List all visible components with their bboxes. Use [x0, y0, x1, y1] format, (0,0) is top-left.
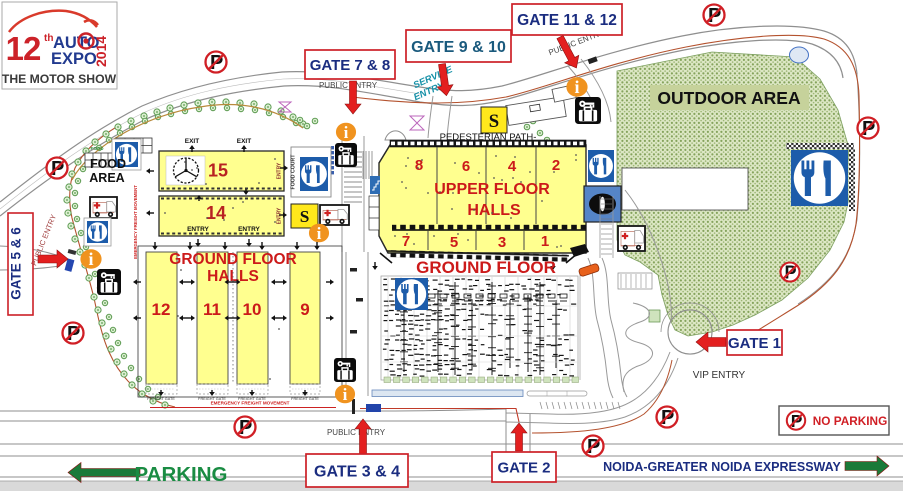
svg-text:GATE 2: GATE 2	[497, 459, 550, 476]
svg-text:12: 12	[152, 300, 171, 319]
svg-text:i: i	[344, 123, 349, 142]
svg-text:PUBLIC ENTRY: PUBLIC ENTRY	[327, 428, 386, 437]
svg-text:GATE 5 & 6: GATE 5 & 6	[9, 227, 24, 300]
svg-text:UPPER FLOOR: UPPER FLOOR	[434, 181, 550, 198]
svg-text:7: 7	[402, 233, 410, 250]
svg-text:EXPO: EXPO	[51, 50, 97, 68]
svg-text:VIP ENTRY: VIP ENTRY	[693, 370, 746, 381]
svg-text:PEDESTERIAN PATH-: PEDESTERIAN PATH-	[440, 132, 537, 143]
svg-text:OUTDOOR AREA: OUTDOOR AREA	[657, 88, 801, 108]
svg-text:AREA: AREA	[89, 171, 124, 185]
svg-text:4: 4	[508, 158, 517, 175]
svg-text:12: 12	[6, 30, 41, 67]
svg-text:GROUND FLOOR: GROUND FLOOR	[416, 258, 556, 277]
svg-text:S: S	[300, 207, 310, 226]
svg-text:2: 2	[552, 157, 560, 174]
svg-text:ENTRY: ENTRY	[277, 207, 283, 224]
svg-text:PARKING: PARKING	[134, 463, 227, 486]
svg-text:ENTRY: ENTRY	[187, 226, 209, 233]
svg-text:i: i	[343, 385, 348, 404]
svg-text:FOOD: FOOD	[91, 146, 105, 151]
svg-text:i: i	[574, 77, 579, 97]
svg-text:FREIGHT GATE: FREIGHT GATE	[147, 397, 175, 401]
svg-text:ENTRY: ENTRY	[277, 162, 283, 179]
svg-text:15: 15	[208, 161, 228, 181]
svg-text:NO PARKING: NO PARKING	[813, 414, 888, 428]
svg-text:GATE 7 & 8: GATE 7 & 8	[310, 57, 391, 74]
svg-text:HALLS: HALLS	[467, 202, 521, 219]
svg-text:THE MOTOR SHOW: THE MOTOR SHOW	[2, 72, 117, 86]
svg-text:9: 9	[300, 300, 309, 319]
svg-text:14: 14	[206, 203, 226, 223]
svg-text:GATE 9 & 10: GATE 9 & 10	[411, 39, 506, 56]
svg-text:2014: 2014	[93, 36, 109, 67]
svg-text:FREIGHT GATE: FREIGHT GATE	[291, 397, 319, 401]
svg-text:EXIT: EXIT	[237, 138, 251, 145]
svg-text:1: 1	[541, 233, 549, 250]
svg-text:11: 11	[203, 300, 221, 319]
svg-text:i: i	[317, 224, 322, 243]
svg-text:S: S	[489, 111, 499, 132]
svg-text:3: 3	[498, 234, 506, 251]
svg-text:EXIT: EXIT	[185, 138, 199, 145]
svg-text:NOIDA-GREATER NOIDA EXPRESSWAY: NOIDA-GREATER NOIDA EXPRESSWAY	[603, 460, 841, 474]
svg-text:GATE 3 & 4: GATE 3 & 4	[314, 463, 400, 480]
svg-text:GATE 1: GATE 1	[728, 335, 781, 352]
svg-text:i: i	[88, 249, 93, 269]
svg-text:FOOD COURT: FOOD COURT	[291, 154, 297, 190]
svg-text:FOOD: FOOD	[90, 157, 126, 171]
svg-text:10: 10	[243, 300, 262, 319]
svg-text:ENTRY: ENTRY	[238, 226, 260, 233]
svg-text:PUBLIC ENTRY: PUBLIC ENTRY	[319, 81, 378, 90]
svg-text:GATE 11 & 12: GATE 11 & 12	[517, 12, 617, 29]
svg-text:EMERGENCY FREIGHT MOVEMENT: EMERGENCY FREIGHT MOVEMENT	[133, 185, 138, 259]
svg-text:6: 6	[462, 158, 470, 175]
svg-text:5: 5	[450, 234, 458, 251]
svg-text:EMERGENCY FREIGHT MOVEMENT: EMERGENCY FREIGHT MOVEMENT	[211, 401, 290, 406]
